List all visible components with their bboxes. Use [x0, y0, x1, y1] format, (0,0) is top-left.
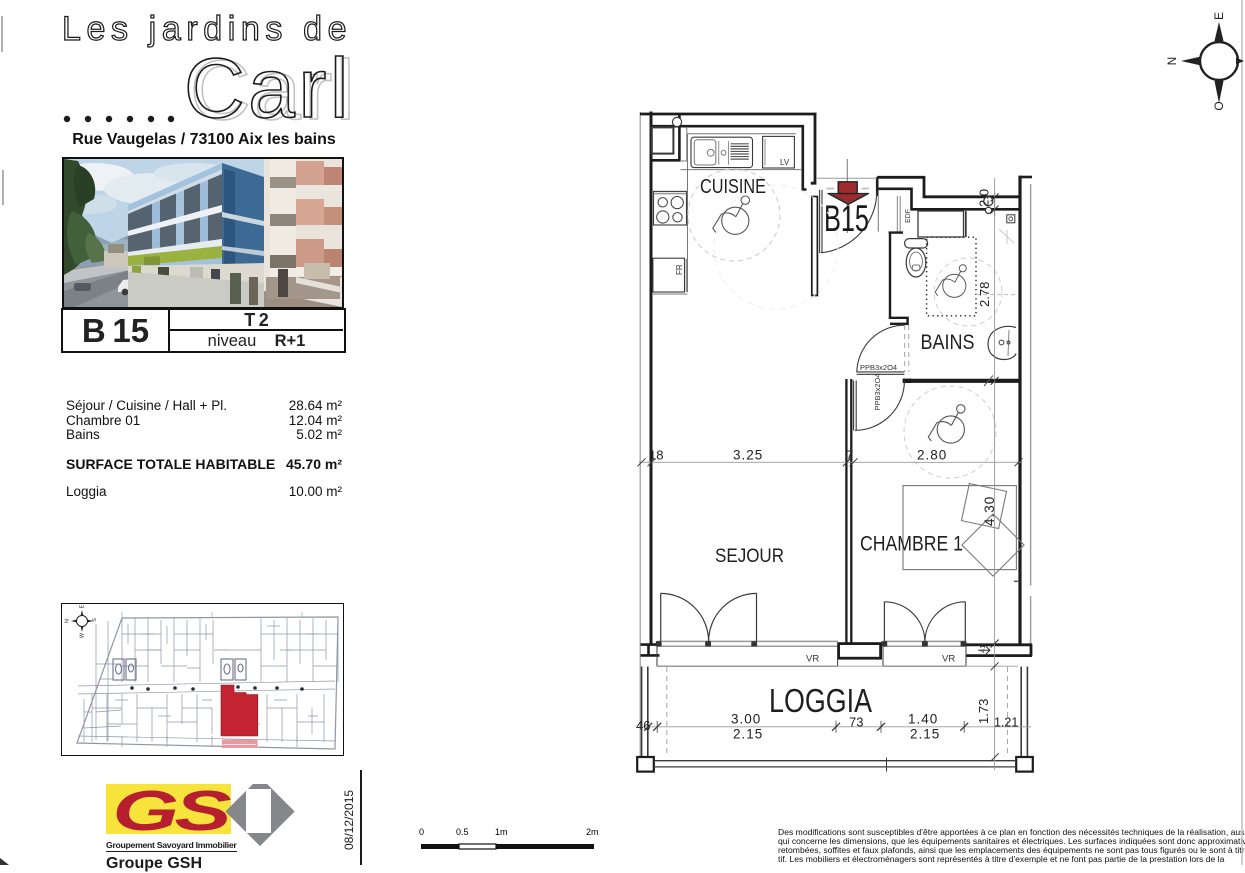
svg-text:2.15: 2.15 — [910, 727, 940, 742]
svg-text:BAINS: BAINS — [921, 331, 975, 354]
svg-text:4.30: 4.30 — [982, 496, 997, 526]
svg-text:1.73: 1.73 — [976, 699, 991, 724]
svg-text:B15: B15 — [824, 198, 869, 239]
svg-text:2.78: 2.78 — [977, 282, 992, 307]
svg-text:VR: VR — [942, 654, 955, 665]
svg-text:LOGGIA: LOGGIA — [769, 682, 872, 719]
svg-text:N: N — [1165, 57, 1179, 66]
svg-text:46: 46 — [636, 718, 650, 733]
svg-text:2.15: 2.15 — [733, 727, 763, 742]
svg-text:O: O — [1212, 101, 1226, 110]
svg-text:1.40: 1.40 — [908, 712, 938, 727]
svg-text:18: 18 — [649, 448, 663, 463]
svg-text:EDF: EDF — [905, 209, 912, 223]
svg-text:3.25: 3.25 — [733, 448, 763, 463]
svg-text:FR: FR — [675, 264, 684, 275]
svg-text:73: 73 — [849, 715, 863, 730]
svg-text:LV: LV — [780, 158, 790, 167]
svg-text:SEJOUR: SEJOUR — [715, 546, 784, 567]
svg-text:PPB3x2O4: PPB3x2O4 — [873, 373, 882, 410]
svg-text:2.0: 2.0 — [977, 189, 992, 207]
svg-text:PPB3x2O4: PPB3x2O4 — [860, 363, 897, 372]
svg-text:7: 7 — [846, 448, 853, 463]
svg-text:CUISINE: CUISINE — [700, 176, 766, 198]
svg-text:CHAMBRE 1: CHAMBRE 1 — [860, 533, 963, 556]
svg-text:VR: VR — [806, 654, 819, 665]
svg-text:41: 41 — [978, 645, 987, 653]
svg-text:3.00: 3.00 — [731, 712, 761, 727]
svg-text:1.21: 1.21 — [994, 716, 1018, 730]
svg-text:2.80: 2.80 — [917, 448, 947, 463]
svg-text:E: E — [1212, 12, 1226, 20]
